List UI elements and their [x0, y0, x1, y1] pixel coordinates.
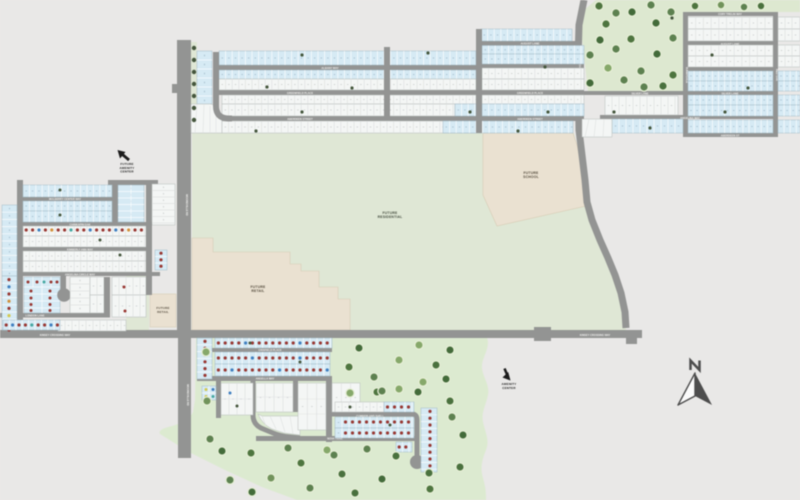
svg-text:MOOREVILLE RD: MOOREVILLE RD	[186, 384, 190, 406]
svg-text:SILVER LANE: SILVER LANE	[632, 92, 649, 96]
svg-text:CORY TRELIN WAY: CORY TRELIN WAY	[718, 12, 742, 16]
svg-text:ABERDEEN ST: ABERDEEN ST	[721, 134, 740, 138]
svg-text:AUGUST LANE: AUGUST LANE	[521, 42, 540, 46]
svg-text:CENTER: CENTER	[120, 170, 134, 174]
svg-text:RESIDENTIAL: RESIDENTIAL	[378, 215, 403, 219]
svg-text:MOOREVILLE RD: MOOREVILLE RD	[185, 194, 189, 216]
svg-text:CRISFIELD PLACE: CRISFIELD PLACE	[258, 348, 281, 352]
svg-text:MULBERRY CENTER WAY: MULBERRY CENTER WAY	[49, 197, 82, 201]
svg-text:KINSEY CROSSING WAY: KINSEY CROSSING WAY	[580, 333, 611, 337]
svg-text:ABERDEEN STREET: ABERDEEN STREET	[517, 117, 543, 121]
svg-text:LONDON LANE: LONDON LANE	[25, 314, 44, 318]
svg-text:GREENFIELD PLACE: GREENFIELD PLACE	[287, 91, 313, 95]
svg-text:GREENFIELD PLACE: GREENFIELD PLACE	[517, 91, 543, 95]
svg-text:RETAIL: RETAIL	[251, 289, 264, 293]
svg-text:ALBANY WAY: ALBANY WAY	[321, 66, 338, 70]
svg-text:SCHOOL: SCHOOL	[523, 175, 539, 179]
svg-text:KINSEY CROSSING WAY: KINSEY CROSSING WAY	[40, 333, 71, 337]
svg-text:ABERDEEN STREET: ABERDEEN STREET	[287, 117, 313, 121]
svg-text:ANGELLA WAY: ANGELLA WAY	[256, 377, 275, 381]
svg-text:CENTER: CENTER	[502, 386, 516, 390]
svg-text:RETAIL: RETAIL	[157, 310, 169, 314]
svg-text:ANGELINA CIRCLE WAY: ANGELINA CIRCLE WAY	[65, 273, 95, 277]
